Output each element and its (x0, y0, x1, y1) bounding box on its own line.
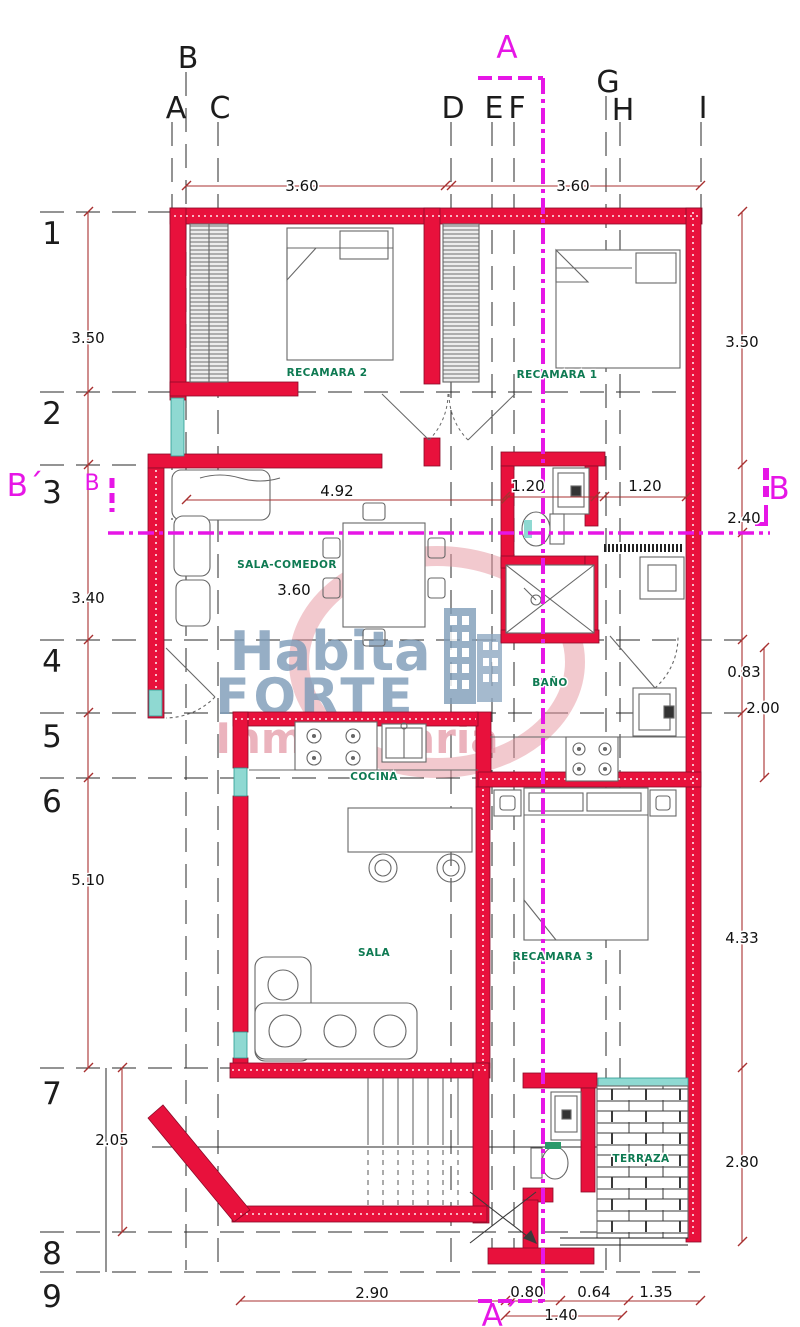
row-label-4: 4 (42, 644, 62, 680)
section-label-a-top: A (496, 30, 517, 66)
staircase (368, 1078, 458, 1205)
dim-bottom-5: 1.40 (544, 1306, 577, 1324)
closet-bedroom1 (443, 224, 479, 382)
door-bedroom2 (382, 394, 448, 440)
room-label-recamara1: RECAMARA 1 (517, 369, 598, 381)
sofa-sala-comedor (172, 470, 280, 626)
dim-mid-1: 4.92 (320, 482, 353, 500)
window-left-upper (171, 398, 184, 456)
utility-table (640, 557, 684, 599)
door-entry (166, 648, 215, 718)
kitchen-island (348, 808, 472, 882)
room-label-cocina: COCINA (350, 771, 398, 783)
grid-column-labels: B A C D E F G H I (166, 41, 708, 128)
section-label-b-right: B (768, 471, 789, 507)
dim-right-6: 2.80 (725, 1153, 758, 1171)
room-label-sala-comedor: SALA-COMEDOR (237, 559, 337, 571)
toilet-bottom (531, 1142, 568, 1179)
col-label-i: I (699, 91, 708, 126)
col-label-d: D (441, 91, 464, 126)
row-label-2: 2 (42, 396, 62, 432)
row-label-3: 3 (42, 475, 62, 511)
washbasin-bath (553, 468, 589, 514)
dim-mid-2: 1.20 (511, 477, 544, 495)
room-label-recamara2: RECAMARA 2 (287, 367, 368, 379)
shower (506, 565, 594, 633)
room-label-sala: SALA (358, 947, 391, 959)
row-label-7: 7 (42, 1076, 62, 1112)
grid-row-labels: 1 2 3 4 5 6 7 8 9 (42, 216, 62, 1315)
dim-left-1: 3.50 (71, 329, 104, 347)
dim-top-1: 3.60 (285, 177, 318, 195)
col-label-h: H (612, 93, 635, 128)
bed-bedroom2 (287, 228, 393, 360)
floor-plan-canvas: Habita FORTE Inmobiliaria (0, 0, 800, 1327)
row-label-8: 8 (42, 1236, 62, 1272)
window-kitchen (234, 768, 247, 796)
row-label-1: 1 (42, 216, 62, 252)
bed-bedroom3 (494, 788, 676, 940)
row-label-6: 6 (42, 784, 62, 820)
window-sala-lower (234, 1032, 247, 1058)
dim-left-4: 2.05 (95, 1131, 128, 1149)
section-label-b-left: B´ (7, 468, 44, 504)
dim-bottom-4: 1.35 (639, 1283, 672, 1301)
dim-right-3: 0.83 (727, 663, 760, 681)
col-label-b: B (178, 41, 199, 76)
washbasin-bottom (551, 1092, 581, 1140)
room-label-terraza: TERRAZA (612, 1153, 670, 1165)
section-label-b-left2: B (84, 471, 99, 496)
col-label-a: A (166, 91, 187, 126)
row-label-9: 9 (42, 1279, 62, 1315)
col-label-e: E (485, 91, 504, 126)
floor-plan-drawing: Habita FORTE Inmobiliaria (0, 0, 800, 1327)
room-label-bano: BAÑO (532, 676, 567, 689)
bed-bedroom1 (556, 250, 680, 368)
dim-right-1: 3.50 (725, 333, 758, 351)
col-label-f: F (508, 91, 525, 126)
dim-left-2: 3.40 (71, 589, 104, 607)
dim-left-3: 5.10 (71, 871, 104, 889)
window-terrace (598, 1078, 688, 1086)
dim-mid-4: 3.60 (277, 581, 310, 599)
stove-kitchen (295, 722, 377, 770)
section-label-a-bottom: A´ (482, 1298, 519, 1327)
dim-right-2: 2.40 (727, 509, 760, 527)
dim-bottom-3: 0.64 (577, 1283, 610, 1301)
dim-top-2: 3.60 (556, 177, 589, 195)
row-label-5: 5 (42, 719, 62, 755)
dim-mid-3: 1.20 (628, 477, 661, 495)
watermark-building-icon (444, 608, 502, 704)
room-label-recamara3: RECAMARA 3 (513, 951, 594, 963)
dim-bottom-1: 2.90 (355, 1284, 388, 1302)
door-bedroom1 (449, 394, 515, 440)
sofa-sala (255, 957, 417, 1061)
dim-right-5: 4.33 (725, 929, 758, 947)
col-label-c: C (210, 91, 231, 126)
dim-right-4: 2.00 (746, 699, 779, 717)
dim-bottom-2: 0.80 (510, 1283, 543, 1301)
window-sala-left (149, 690, 162, 716)
stove-right (566, 737, 618, 781)
